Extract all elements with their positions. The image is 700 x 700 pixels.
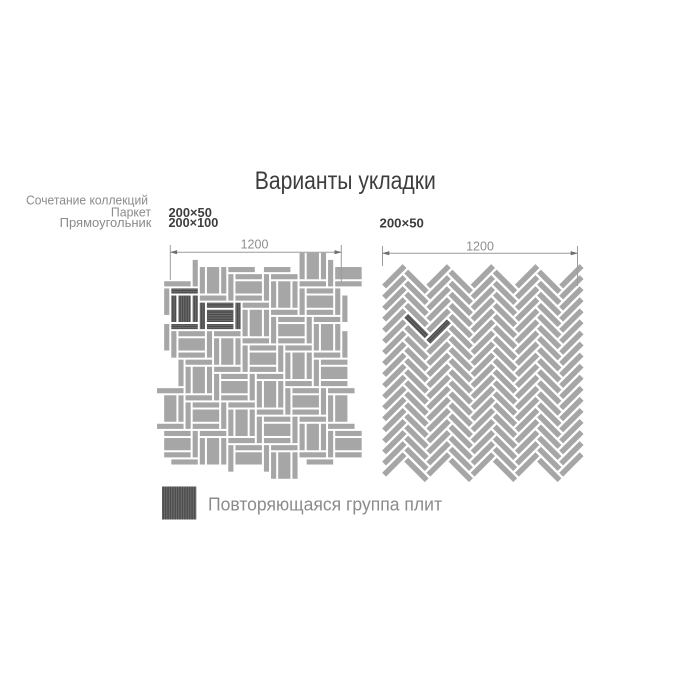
svg-text:200×50: 200×50	[380, 215, 424, 230]
svg-text:200×100: 200×100	[169, 215, 219, 230]
svg-text:1200: 1200	[466, 239, 494, 253]
svg-text:1200: 1200	[241, 237, 269, 251]
svg-text:Повторяющаяся группа плит: Повторяющаяся группа плит	[208, 495, 442, 515]
svg-text:Прямоугольник: Прямоугольник	[60, 215, 152, 230]
svg-text:Варианты укладки: Варианты укладки	[255, 167, 436, 195]
